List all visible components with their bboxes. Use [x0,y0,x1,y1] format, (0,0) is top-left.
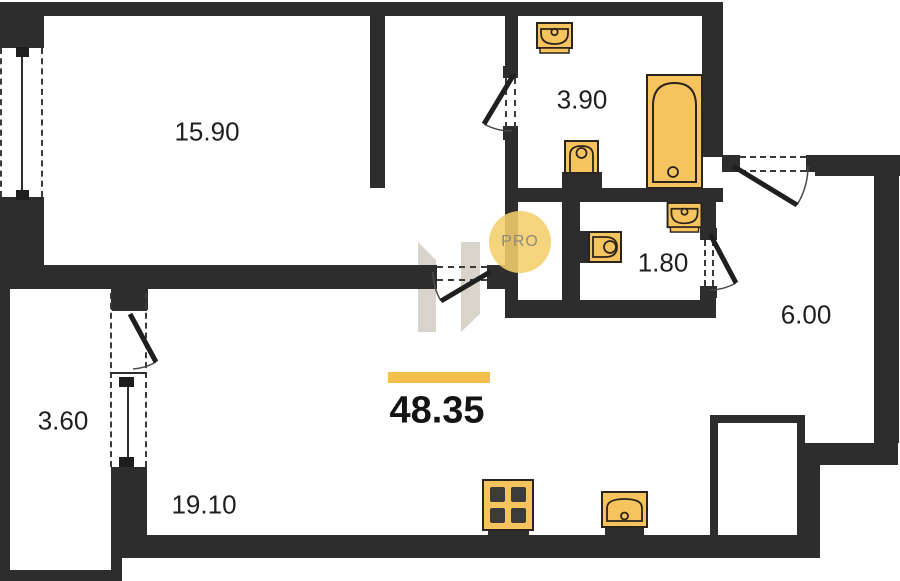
door-arc [133,124,808,369]
door-leaf [130,74,797,362]
door-swing-overlay [0,0,900,581]
floor-plan: 15.90 3.90 1.80 6.00 3.60 19.10 48.35 PR… [0,0,900,581]
